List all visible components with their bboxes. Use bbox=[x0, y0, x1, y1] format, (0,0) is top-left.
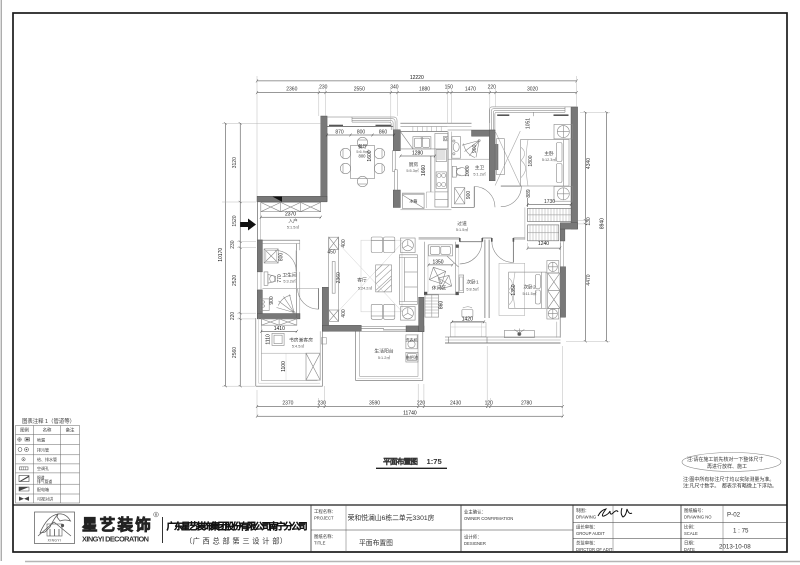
svg-text:客厅: 客厅 bbox=[357, 277, 367, 284]
svg-text:洗衣机: 洗衣机 bbox=[406, 337, 418, 343]
svg-text:空调孔: 空调孔 bbox=[37, 465, 49, 471]
svg-text:2370: 2370 bbox=[282, 401, 293, 407]
svg-text:总监审核：: 总监审核： bbox=[576, 540, 598, 547]
svg-text:2360: 2360 bbox=[286, 87, 297, 93]
svg-text:5:4.5㎡: 5:4.5㎡ bbox=[292, 344, 304, 349]
svg-text:给、排水管: 给、排水管 bbox=[37, 456, 57, 462]
svg-text:DRAWING: DRAWING bbox=[576, 515, 596, 520]
svg-text:450: 450 bbox=[327, 250, 336, 256]
svg-text:3590: 3590 bbox=[369, 401, 380, 407]
svg-text:注:图中所有标注尺寸均以实际测量为准。: 注:图中所有标注尺寸均以实际测量为准。 bbox=[683, 476, 774, 483]
svg-text:2780: 2780 bbox=[521, 401, 532, 407]
svg-text:生活阳台: 生活阳台 bbox=[374, 348, 393, 355]
svg-text:900: 900 bbox=[466, 191, 472, 200]
svg-text:800: 800 bbox=[279, 253, 285, 262]
svg-text:图例: 图例 bbox=[20, 427, 29, 434]
svg-text:名称: 名称 bbox=[43, 427, 52, 434]
svg-text:1100: 1100 bbox=[281, 361, 287, 372]
svg-text:OWNER CONFIRMATION: OWNER CONFIRMATION bbox=[464, 516, 513, 521]
svg-text:2430: 2430 bbox=[450, 401, 461, 407]
svg-text:主卧: 主卧 bbox=[544, 150, 554, 157]
svg-text:860: 860 bbox=[438, 301, 444, 310]
svg-text:广东星艺装饰集团股份有限公司南宁分公司: 广东星艺装饰集团股份有限公司南宁分公司 bbox=[167, 521, 308, 532]
svg-text:1660: 1660 bbox=[421, 165, 427, 176]
svg-text:800: 800 bbox=[359, 154, 367, 159]
svg-text:10170: 10170 bbox=[218, 248, 224, 262]
svg-text:厨房: 厨房 bbox=[409, 161, 419, 168]
svg-text:1880: 1880 bbox=[419, 87, 430, 93]
svg-text:1051: 1051 bbox=[526, 118, 532, 129]
svg-text:1280: 1280 bbox=[412, 151, 423, 157]
svg-text:2360: 2360 bbox=[336, 272, 342, 283]
svg-text:889: 889 bbox=[526, 189, 532, 198]
svg-text:设计师：: 设计师： bbox=[464, 534, 482, 541]
svg-text:1470: 1470 bbox=[465, 87, 476, 93]
svg-text:400: 400 bbox=[341, 309, 347, 318]
svg-text:拖把池: 拖把池 bbox=[406, 354, 418, 360]
svg-text:图纸编号：: 图纸编号： bbox=[684, 507, 706, 514]
svg-text:配电箱: 配电箱 bbox=[37, 486, 49, 492]
svg-text:次卧2: 次卧2 bbox=[523, 284, 536, 291]
svg-text:P-02: P-02 bbox=[727, 512, 741, 519]
svg-text:1730: 1730 bbox=[544, 199, 555, 205]
svg-text:再进行放样、施工: 再进行放样、施工 bbox=[707, 463, 747, 470]
svg-text:11740: 11740 bbox=[403, 410, 417, 416]
svg-text:2560: 2560 bbox=[232, 347, 238, 358]
svg-text:1410: 1410 bbox=[274, 326, 285, 332]
svg-text:可视对讲: 可视对讲 bbox=[37, 496, 53, 502]
svg-text:5:1.5㎡: 5:1.5㎡ bbox=[287, 225, 299, 230]
svg-text:2013-10-08: 2013-10-08 bbox=[719, 544, 751, 551]
svg-text:1:75: 1:75 bbox=[427, 457, 443, 466]
svg-text:1110: 1110 bbox=[265, 334, 271, 345]
svg-text:DRAWING NO: DRAWING NO bbox=[684, 515, 712, 520]
svg-text:1800: 1800 bbox=[528, 155, 534, 166]
svg-text:5:1.2㎡: 5:1.2㎡ bbox=[378, 355, 390, 360]
svg-text:XINGYI: XINGYI bbox=[48, 539, 62, 543]
svg-text:120: 120 bbox=[485, 401, 494, 407]
svg-text:2520: 2520 bbox=[232, 275, 238, 286]
svg-text:5:1.5㎡: 5:1.5㎡ bbox=[456, 227, 468, 232]
svg-text:备注: 备注 bbox=[66, 427, 75, 434]
svg-text:DIRCTOR OF ADIT: DIRCTOR OF ADIT bbox=[576, 547, 613, 552]
svg-text:1 : 75: 1 : 75 bbox=[733, 528, 749, 535]
svg-text:12220: 12220 bbox=[410, 75, 424, 81]
svg-text:5:1.2㎡: 5:1.2㎡ bbox=[473, 172, 485, 177]
svg-text:800: 800 bbox=[357, 130, 366, 136]
svg-text:1420: 1420 bbox=[462, 316, 473, 322]
svg-text:5:8.5㎡: 5:8.5㎡ bbox=[466, 287, 478, 292]
svg-text:8940: 8940 bbox=[599, 218, 605, 229]
svg-text:150: 150 bbox=[445, 85, 454, 91]
svg-text:工程名称：: 工程名称： bbox=[314, 508, 336, 515]
svg-text:制图：: 制图： bbox=[576, 507, 589, 514]
svg-text:主卫: 主卫 bbox=[475, 164, 485, 171]
svg-text:4470: 4470 bbox=[586, 274, 592, 285]
svg-text:1000: 1000 bbox=[465, 165, 471, 176]
svg-text:组长审核：: 组长审核： bbox=[576, 524, 598, 531]
svg-text:DATE: DATE bbox=[684, 547, 695, 552]
svg-text:（广 西 总 部 第 三 设 计 部）: （广 西 总 部 第 三 设 计 部） bbox=[185, 537, 287, 546]
svg-text:GROUP AUDIT: GROUP AUDIT bbox=[576, 531, 605, 536]
svg-text:900: 900 bbox=[269, 296, 275, 305]
svg-text:870: 870 bbox=[335, 130, 344, 136]
svg-text:3020: 3020 bbox=[527, 87, 538, 93]
svg-text:次卧1: 次卧1 bbox=[466, 279, 479, 286]
svg-text:业主确认：: 业主确认： bbox=[464, 509, 486, 516]
svg-text:1350: 1350 bbox=[511, 284, 517, 295]
svg-text:荣和悦澜山6栋二单元3301房: 荣和悦澜山6栋二单元3301房 bbox=[348, 513, 435, 522]
svg-text:书房兼客房: 书房兼客房 bbox=[289, 337, 313, 344]
svg-text:注:凡尺寸数字。 都表示有略微上下浮动。: 注:凡尺寸数字。 都表示有略微上下浮动。 bbox=[683, 483, 777, 490]
svg-text:图表注释 1（管道等）: 图表注释 1（管道等） bbox=[22, 417, 75, 425]
svg-text:地漏: 地漏 bbox=[37, 436, 45, 442]
svg-text:卫生间: 卫生间 bbox=[282, 272, 297, 279]
svg-text:排气管道: 排气管道 bbox=[37, 479, 52, 484]
svg-text:770: 770 bbox=[277, 274, 283, 283]
svg-text:5:11.5㎡: 5:11.5㎡ bbox=[522, 291, 536, 296]
svg-text:DESIGNER: DESIGNER bbox=[464, 541, 486, 546]
svg-text:5:5.3㎡: 5:5.3㎡ bbox=[406, 168, 418, 173]
svg-text:注:请在施工前先核对一下整体尺寸: 注:请在施工前先核对一下整体尺寸 bbox=[687, 456, 763, 463]
svg-text:220: 220 bbox=[230, 312, 236, 321]
svg-text:1520: 1520 bbox=[232, 215, 238, 226]
svg-text:4340: 4340 bbox=[586, 158, 592, 169]
svg-text:TITLE: TITLE bbox=[314, 541, 326, 546]
svg-text:图纸名称：: 图纸名称： bbox=[314, 533, 336, 540]
svg-text:排污管: 排污管 bbox=[37, 446, 49, 452]
svg-text:冰箱: 冰箱 bbox=[409, 198, 417, 204]
svg-text:5:24.2㎡: 5:24.2㎡ bbox=[358, 286, 373, 291]
svg-text:平面布置图: 平面布置图 bbox=[383, 456, 418, 466]
svg-text:1600: 1600 bbox=[367, 150, 373, 161]
svg-text:230: 230 bbox=[319, 85, 328, 91]
svg-text:SCALE: SCALE bbox=[684, 531, 698, 536]
svg-text:860: 860 bbox=[379, 130, 388, 136]
svg-text:平面布置图: 平面布置图 bbox=[359, 538, 393, 547]
svg-text:2370: 2370 bbox=[285, 212, 296, 218]
svg-text:2550: 2550 bbox=[354, 87, 365, 93]
svg-text:5:12.3㎡: 5:12.3㎡ bbox=[542, 157, 557, 162]
svg-text:1240: 1240 bbox=[538, 241, 549, 247]
svg-text:入户: 入户 bbox=[288, 218, 298, 225]
svg-text:星艺装饰: 星艺装饰 bbox=[82, 515, 152, 534]
svg-text:1350: 1350 bbox=[432, 259, 443, 265]
svg-text:5:3.2㎡: 5:3.2㎡ bbox=[283, 279, 295, 284]
svg-text:230: 230 bbox=[230, 240, 236, 249]
svg-text:过道: 过道 bbox=[457, 220, 467, 227]
svg-text:休闲区: 休闲区 bbox=[432, 285, 447, 292]
svg-text:220: 220 bbox=[488, 85, 497, 91]
svg-text:3120: 3120 bbox=[232, 157, 238, 168]
svg-text:R: R bbox=[155, 513, 158, 517]
svg-text:PROJECT: PROJECT bbox=[314, 516, 334, 521]
svg-text:900: 900 bbox=[472, 144, 478, 153]
svg-text:比例：: 比例： bbox=[684, 524, 697, 531]
svg-text:400: 400 bbox=[341, 239, 347, 248]
svg-text:XINGYI DECORATION: XINGYI DECORATION bbox=[82, 535, 149, 544]
